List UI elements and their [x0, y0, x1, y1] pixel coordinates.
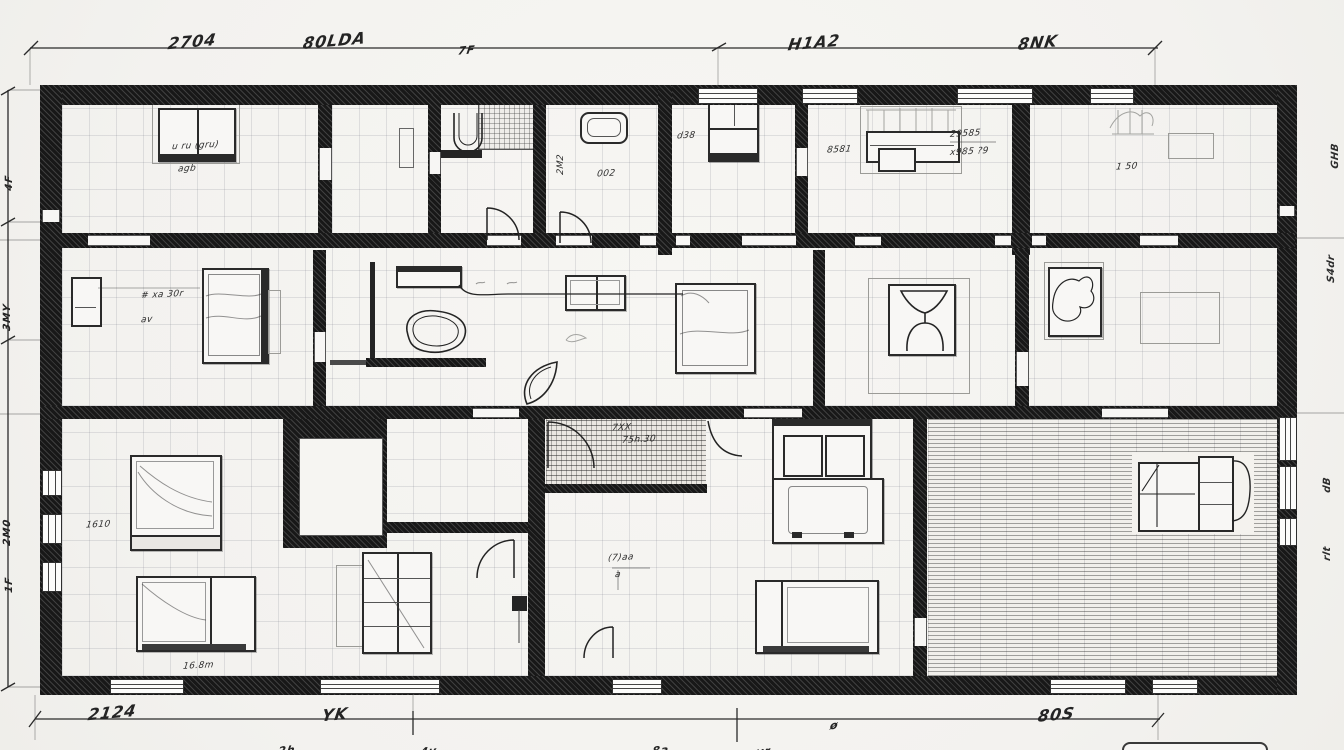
dim-label-bottom-2: YK: [321, 704, 350, 726]
toilet-bowl-icon: [413, 316, 458, 346]
dim-label-right-1: GHB: [1330, 143, 1341, 170]
dim-label-bottom-4: 80S: [1037, 703, 1077, 726]
door-arc: [584, 627, 613, 658]
dim-label-bottom2-4: yr: [755, 744, 772, 750]
room-note: 1 50: [1115, 161, 1138, 172]
vanity-sink-icon: [907, 323, 943, 351]
dim-label-left-1: 4F: [4, 174, 15, 191]
pencil-creases: [138, 142, 996, 648]
room-note: (7)aa: [607, 552, 634, 563]
dim-label-bottom2-1: 2h: [277, 743, 297, 750]
armchair-cushion-icon: [1053, 277, 1094, 321]
room-note: x985 ?9: [949, 146, 989, 158]
room-note: 29585: [949, 128, 981, 140]
room-note: 2M2: [556, 154, 566, 176]
dim-label-left-2: 3MY: [2, 303, 13, 332]
door-arc: [708, 421, 742, 456]
door-arc: [477, 540, 514, 578]
sketch-overlay: [0, 0, 1344, 750]
toilet-icon: [459, 113, 477, 145]
pencil-sketch: [566, 335, 586, 342]
door-arc: [548, 422, 594, 468]
dim-label-right-4: rlt: [1322, 546, 1333, 562]
fixtures: [407, 113, 1250, 527]
room-note: 8581: [826, 144, 852, 155]
room-note: a: [614, 570, 621, 580]
pencil-sketch: [866, 108, 956, 131]
bottom-right-tag: [1122, 742, 1268, 750]
door-arc: [560, 212, 591, 243]
dim-label-left-4: 1F: [4, 576, 15, 593]
door-arcs: [477, 208, 742, 658]
room-note: 1610: [85, 519, 111, 530]
dim-label-bottom2-2: 4y: [419, 744, 438, 750]
room-note: 7XX: [611, 422, 631, 433]
room-note: d38: [676, 130, 696, 141]
dim-label-right-2: S4dr: [1326, 254, 1337, 283]
dim-label-bottom-3: ø: [829, 719, 840, 733]
door-leaf-icon: [530, 367, 551, 399]
dim-label-bottom2-3: 8a: [651, 743, 670, 750]
room-note: av: [140, 315, 153, 326]
dim-label-left-3: 2M0: [2, 518, 13, 546]
door-arc: [487, 208, 519, 240]
dim-label-right-3: dB: [1322, 476, 1333, 493]
dim-label-top-3: 7F: [457, 43, 476, 58]
dim-label-top-5: 8NK: [1017, 31, 1060, 54]
room-note: 16.8m: [182, 660, 214, 672]
pencil-sketch: [1110, 108, 1154, 134]
room-note: agb: [177, 163, 196, 174]
extension-lines: [0, 48, 1344, 740]
floor-plan-canvas: 2704 80LDA 7F H1A2 8NK 2124 YK ø 80S 2h …: [0, 0, 1344, 750]
terrace-chair-icon: [1232, 461, 1250, 521]
vanity-sink-icon: [901, 291, 947, 313]
table-divider-lines: [1138, 463, 1195, 527]
counter-line: [459, 285, 683, 295]
room-note: 75h.30: [621, 434, 656, 446]
room-note: 002: [596, 168, 616, 179]
door-leaf-icon: [525, 362, 557, 404]
toilet-icon: [454, 113, 482, 152]
